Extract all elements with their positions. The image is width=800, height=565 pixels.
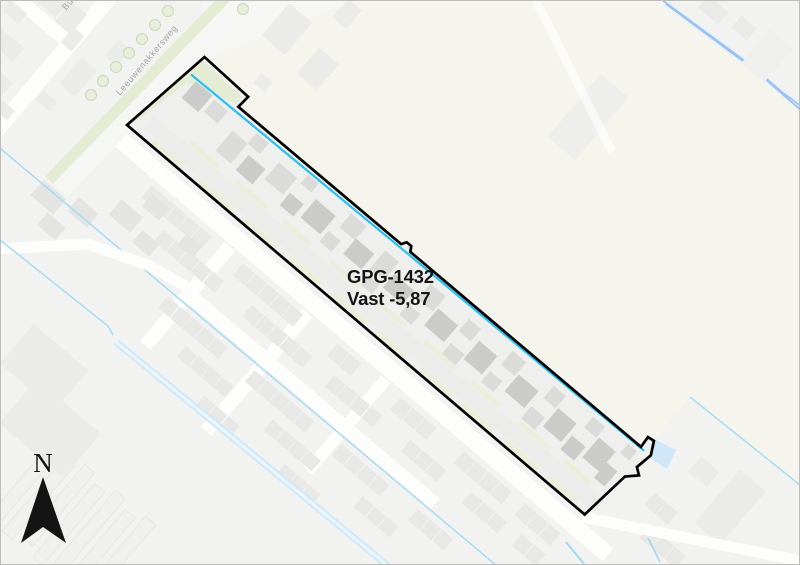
- parcel-value-label: Vast -5,87: [347, 288, 430, 309]
- map-canvas[interactable]: GPG-1432 Vast -5,87 Leeuwenakkersweg Bu …: [0, 0, 800, 565]
- parcel-id-label: GPG-1432: [347, 266, 434, 287]
- north-label: N: [33, 448, 53, 478]
- map-svg: GPG-1432 Vast -5,87 Leeuwenakkersweg Bu …: [0, 0, 800, 565]
